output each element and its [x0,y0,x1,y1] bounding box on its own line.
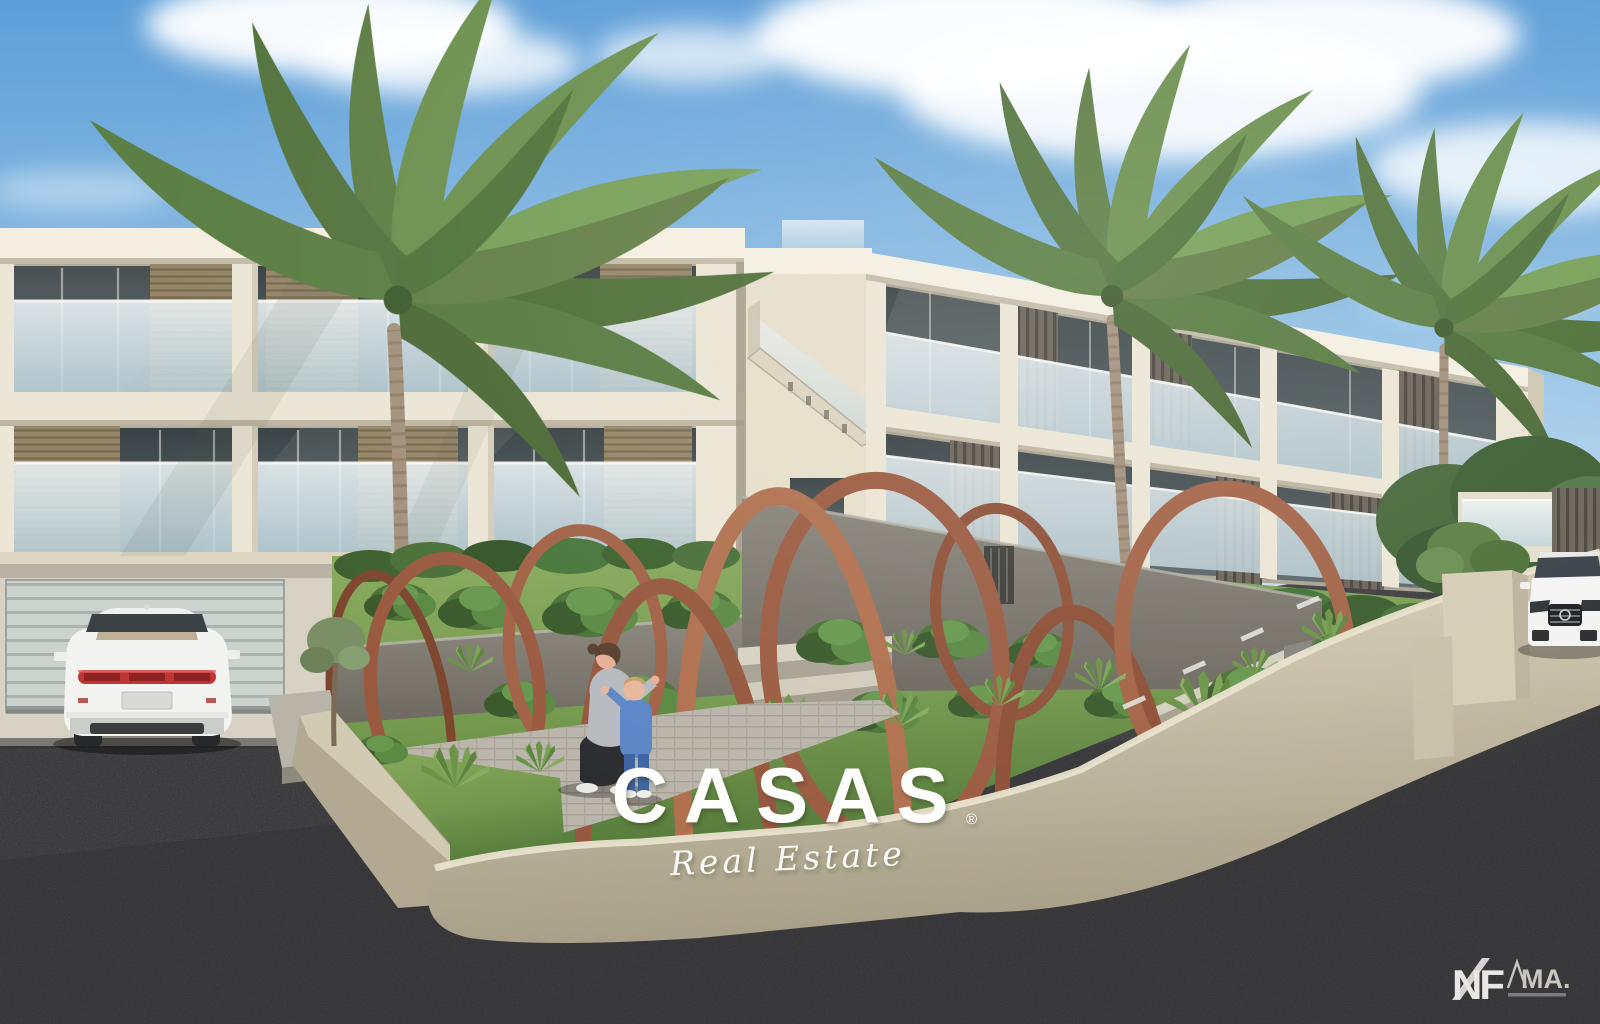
sunlight-overlay [0,0,1600,1024]
logo-nf: NF [1452,961,1504,1008]
logo-ma: MA. [1521,964,1571,994]
render-scene: CASAS ® Real Estate NF MA. [0,0,1600,1024]
logo-subtext-bar [1508,993,1566,997]
